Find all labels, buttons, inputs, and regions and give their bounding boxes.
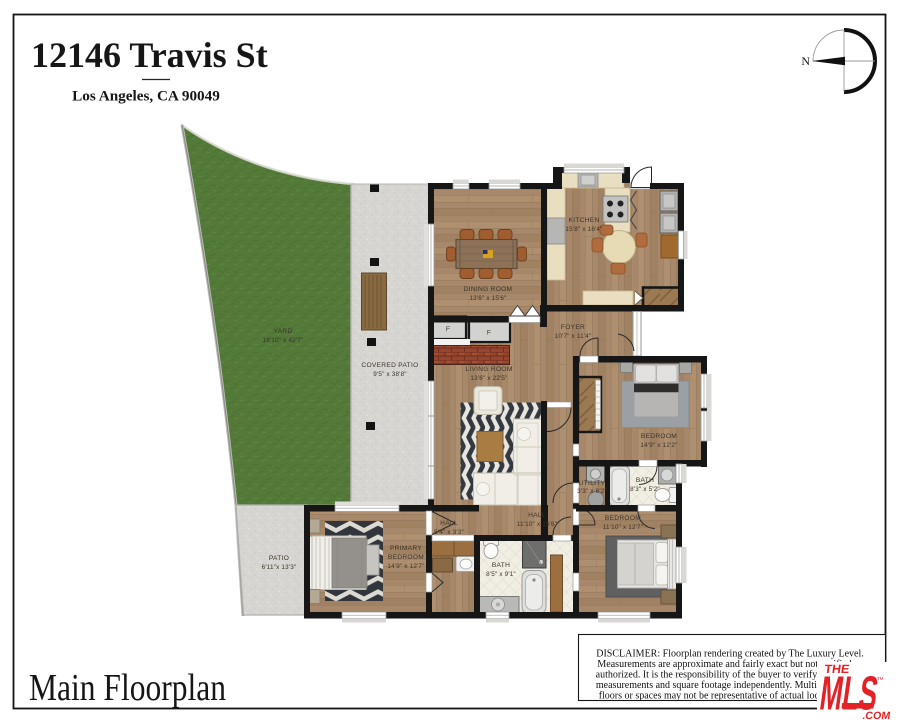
svg-text:Los Angeles, CA 90049: Los Angeles, CA 90049 xyxy=(72,88,220,105)
svg-text:8'5" x 9'1": 8'5" x 9'1" xyxy=(486,571,516,578)
svg-text:10'7" x 11'4": 10'7" x 11'4" xyxy=(555,333,592,340)
svg-text:YARD: YARD xyxy=(273,328,292,335)
svg-text:11'10" x 12'7": 11'10" x 12'7" xyxy=(603,524,643,531)
svg-text:5'4" x 3'3": 5'4" x 3'3" xyxy=(434,529,464,536)
svg-text:floors or spaces may not be re: floors or spaces may not be representati… xyxy=(599,691,846,702)
svg-text:12146 Travis St: 12146 Travis St xyxy=(31,35,268,75)
svg-text:BATH: BATH xyxy=(636,477,654,484)
svg-text:9'5" x 38'8": 9'5" x 38'8" xyxy=(373,371,406,378)
svg-text:LIVING ROOM: LIVING ROOM xyxy=(465,366,512,373)
svg-text:FOYER: FOYER xyxy=(561,324,585,331)
svg-text:PATIO: PATIO xyxy=(269,555,289,562)
svg-text:6'11"x 13'3": 6'11"x 13'3" xyxy=(262,564,297,571)
svg-text:BEDROOM: BEDROOM xyxy=(641,433,677,440)
svg-text:15'8" x 16'4": 15'8" x 16'4" xyxy=(565,226,602,233)
svg-text:BATH: BATH xyxy=(492,562,510,569)
svg-text:TM: TM xyxy=(877,676,884,681)
svg-text:Main Floorplan: Main Floorplan xyxy=(29,667,226,709)
svg-text:BEDROOM: BEDROOM xyxy=(605,515,641,522)
svg-text:DINING ROOM: DINING ROOM xyxy=(464,286,513,293)
svg-text:HALL: HALL xyxy=(440,520,458,527)
svg-text:N: N xyxy=(801,54,810,68)
svg-text:14'9" x 12'7": 14'9" x 12'7" xyxy=(387,563,424,570)
svg-text:COVERED PATIO: COVERED PATIO xyxy=(361,362,418,369)
svg-text:F: F xyxy=(487,330,491,337)
svg-text:.COM: .COM xyxy=(862,710,892,720)
svg-text:PRIMARY: PRIMARY xyxy=(390,545,422,552)
svg-text:13'6" x 15'6": 13'6" x 15'6" xyxy=(469,295,506,302)
svg-text:13'6" x 22'5": 13'6" x 22'5" xyxy=(470,375,507,382)
svg-text:14'9" x 12'2": 14'9" x 12'2" xyxy=(640,442,677,449)
svg-text:UTILITY: UTILITY xyxy=(579,480,606,487)
svg-text:DISCLAIMER: Floorplan renderin: DISCLAIMER: Floorplan rendering created … xyxy=(596,649,864,660)
svg-text:BEDROOM: BEDROOM xyxy=(388,554,424,561)
svg-text:3'3" x 6'2": 3'3" x 6'2" xyxy=(577,488,607,495)
svg-text:11'10" x 15'6": 11'10" x 15'6" xyxy=(517,521,557,528)
svg-text:HALL: HALL xyxy=(528,512,546,519)
svg-text:8'3" x 5'2": 8'3" x 5'2" xyxy=(630,486,660,493)
svg-text:measurements and square footag: measurements and square footage independ… xyxy=(596,680,853,691)
svg-text:KITCHEN: KITCHEN xyxy=(568,217,599,224)
svg-text:18'10" x 42'7": 18'10" x 42'7" xyxy=(263,337,304,344)
svg-text:F: F xyxy=(446,326,450,333)
